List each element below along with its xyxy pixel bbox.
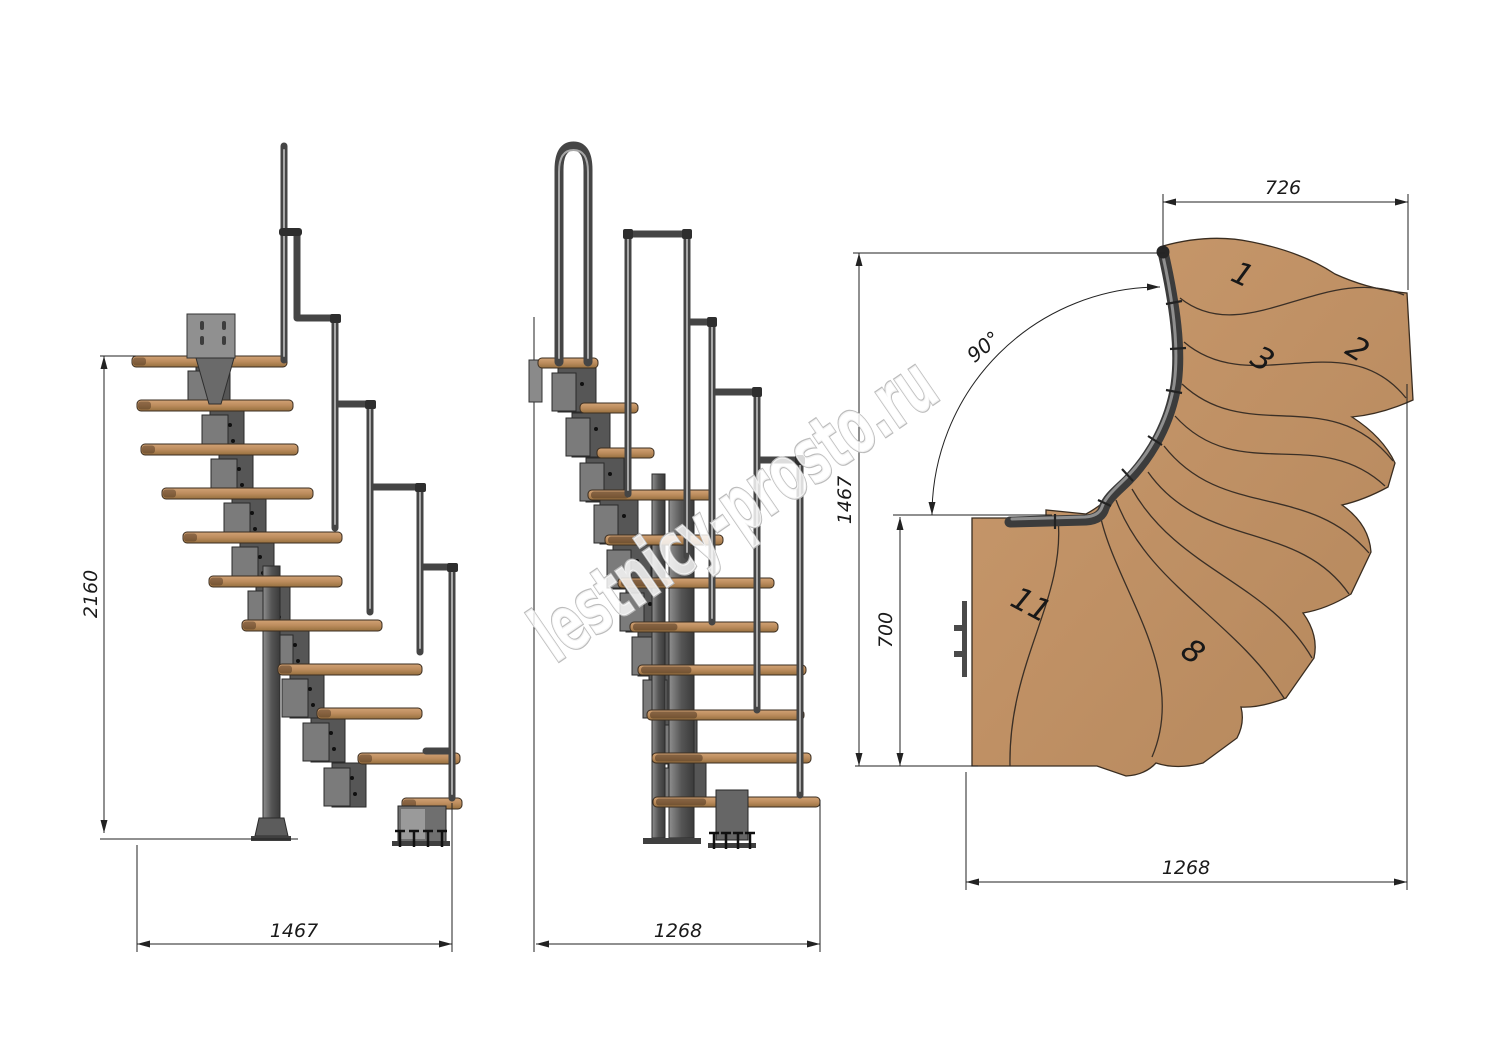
plate-hole <box>200 321 204 330</box>
support-module-face <box>282 679 308 717</box>
wall-mount-plate <box>187 314 235 358</box>
tread-endgrain <box>210 578 223 586</box>
dim-text-726: 726 <box>1265 177 1301 199</box>
plate-hole <box>222 336 226 345</box>
plan-view: 1 2 3 8 11 726 1467 700 <box>834 177 1413 890</box>
tread-endgrain <box>133 358 146 366</box>
dim-text-1268-plan: 1268 <box>1162 857 1210 879</box>
dim-text-1268-bottom: 1268 <box>654 920 702 942</box>
bolt <box>293 643 297 647</box>
support-module-face <box>324 768 350 806</box>
tread <box>162 488 313 499</box>
drawing-canvas: 2160 1467 <box>0 0 1500 1061</box>
dim-text-2160: 2160 <box>80 570 102 618</box>
tread <box>278 664 422 675</box>
bolt <box>311 703 315 707</box>
tread-endgrain <box>243 622 256 630</box>
bolt <box>594 427 598 431</box>
tread <box>317 708 422 719</box>
bolt <box>250 511 254 515</box>
tread-endgrain <box>359 755 372 763</box>
post-base-plate <box>643 838 701 844</box>
post-foot <box>255 818 288 836</box>
tread-endgrain <box>163 490 176 498</box>
bolt <box>296 659 300 663</box>
technical-drawing: 2160 1467 <box>0 0 1500 1061</box>
bolt <box>329 731 333 735</box>
bolt <box>228 423 232 427</box>
treads-outline <box>972 238 1413 776</box>
bolt <box>608 472 612 476</box>
bolt <box>332 747 336 751</box>
tread <box>242 620 382 631</box>
tread-shade <box>656 799 706 806</box>
tread <box>141 444 298 455</box>
bolt <box>350 776 354 780</box>
tread-endgrain <box>142 446 155 454</box>
bolt <box>237 467 241 471</box>
tread-shade <box>650 712 697 719</box>
tread-shade <box>591 492 629 499</box>
support-module-face <box>303 723 329 761</box>
bolt <box>258 555 262 559</box>
tread <box>183 532 342 543</box>
bottom-footing <box>716 790 748 840</box>
angle-90-label: 90° <box>962 326 1005 367</box>
plate-hole <box>200 336 204 345</box>
support-module-face <box>566 418 590 456</box>
dim-text-1467-bottom: 1467 <box>270 920 318 942</box>
tread-endgrain <box>279 666 292 674</box>
tread-shade <box>655 755 703 762</box>
plate-hole <box>222 321 226 330</box>
bolt <box>580 382 584 386</box>
support-module-face <box>552 373 576 411</box>
support-post <box>263 566 280 836</box>
bolt <box>622 514 626 518</box>
tread-shade <box>641 667 691 674</box>
tread-endgrain <box>318 710 331 718</box>
bolt <box>353 792 357 796</box>
bolt <box>253 527 257 531</box>
bolt <box>308 687 312 691</box>
wall-bracket <box>954 601 967 677</box>
side-elevation-view: 2160 1467 <box>80 146 462 952</box>
bolt <box>231 439 235 443</box>
tread-endgrain <box>138 402 151 410</box>
tread <box>358 753 460 764</box>
bolt <box>240 483 244 487</box>
tread-endgrain <box>184 534 197 542</box>
dim-text-700: 700 <box>875 612 897 648</box>
tread <box>209 576 342 587</box>
